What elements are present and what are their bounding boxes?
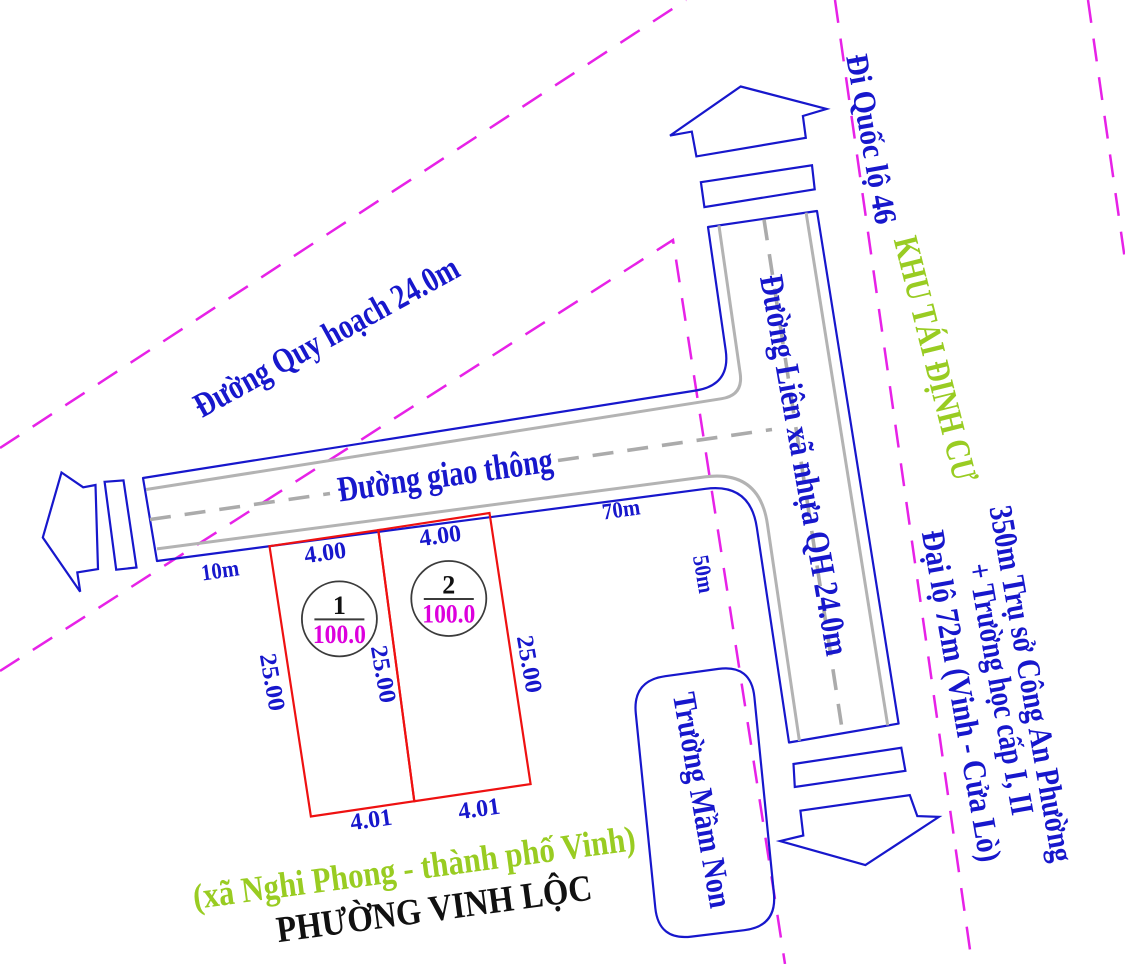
svg-text:100.0: 100.0 [422, 600, 475, 629]
svg-text:10m: 10m [200, 555, 241, 585]
svg-text:1: 1 [333, 591, 346, 620]
svg-text:100.0: 100.0 [313, 620, 366, 649]
svg-text:70m: 70m [601, 494, 642, 524]
svg-text:2: 2 [442, 571, 455, 600]
